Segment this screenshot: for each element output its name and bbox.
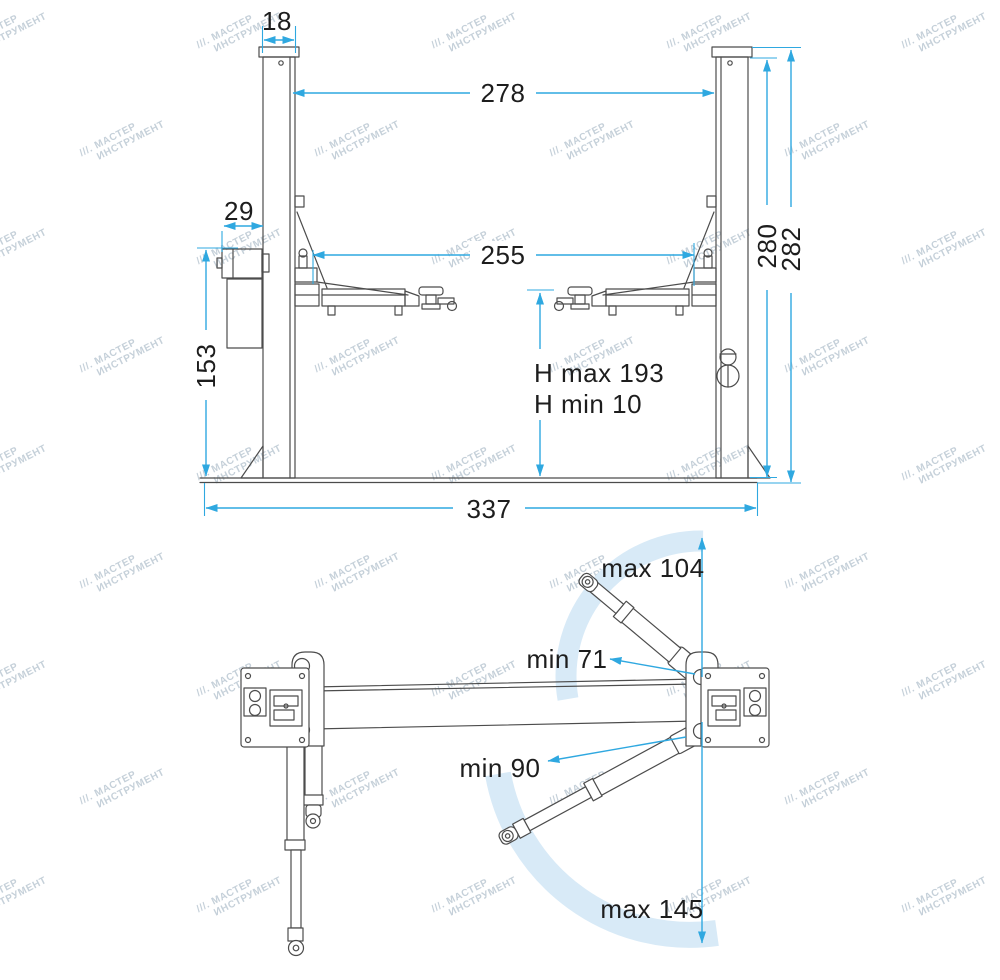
crossbeam	[313, 679, 697, 729]
lock-release-knob	[717, 349, 739, 387]
dim-153-label: 153	[191, 344, 221, 389]
dim-278-label: 278	[481, 78, 526, 108]
dim-282-label: 282	[776, 227, 806, 272]
h-max-label: H max 193	[534, 358, 664, 388]
dim-29-label: 29	[224, 196, 254, 226]
dim-255-label: 255	[481, 240, 526, 270]
right-base-plate	[701, 668, 769, 747]
h-min-label: H min 10	[534, 389, 642, 419]
floor-line	[200, 478, 757, 483]
right-arm-rear	[496, 725, 701, 849]
dim-337-label: 337	[467, 494, 512, 524]
max-145-label: max 145	[600, 894, 703, 924]
lift-drawing-page: ///. МАСТЕРИНСТРУМЕНТ///. МАСТЕРИНСТРУМЕ…	[0, 0, 1000, 980]
left-column	[241, 47, 457, 478]
lift-technical-diagram: 18 278 29 255 153 280 282 H max 193 H mi…	[0, 0, 1000, 980]
max-104-label: max 104	[601, 553, 704, 583]
min-90-label: min 90	[459, 753, 540, 783]
left-base-plate	[241, 668, 309, 747]
dim-18-label: 18	[262, 6, 292, 36]
motor-unit	[217, 249, 269, 348]
min-71-label: min 71	[526, 644, 607, 674]
